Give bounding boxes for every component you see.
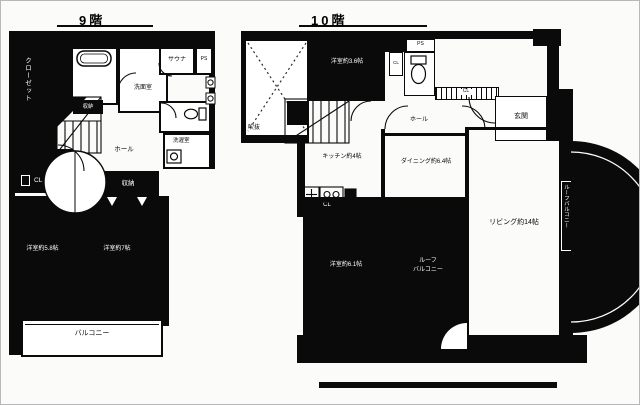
f9-balcony-label: バルコニー bbox=[21, 330, 163, 338]
f10-roof-balcony-side-label: ルーフバルコニー bbox=[563, 184, 569, 248]
floor10-title: 10階 bbox=[299, 10, 427, 27]
f10-ps-label: PS bbox=[406, 42, 435, 48]
f9-toilet-room bbox=[159, 101, 211, 133]
f9-cl-label: CL bbox=[34, 177, 42, 184]
f10-bedroom-bottom bbox=[303, 215, 389, 351]
f10-closet-strip-label: CL bbox=[457, 89, 475, 95]
floorplan-image: 9階 クローゼット 洗面室 サウナ PS 洗濯室 収納 ホール CL 収納 洋室… bbox=[0, 0, 640, 405]
f10-bedroom-bottom-label: 洋室約6.1帖 bbox=[303, 262, 389, 269]
f9-mid-wall bbox=[41, 149, 73, 171]
f10-cl-top-label: CL bbox=[389, 60, 403, 65]
f10-entrance-east-wall bbox=[547, 39, 559, 141]
f9-cl-icon bbox=[21, 175, 30, 186]
f10-south-wall bbox=[297, 335, 587, 363]
f10-entrance-label: 玄関 bbox=[495, 113, 547, 121]
f10-curved-balcony bbox=[571, 141, 640, 333]
f10-living-north-wall bbox=[465, 127, 561, 130]
f10-void bbox=[244, 39, 309, 137]
f9-bedroom-right-label: 洋室約7帖 bbox=[72, 246, 162, 253]
f10-kitchen-label: キッチン約4帖 bbox=[303, 154, 381, 161]
f10-roof-balcony-label2: バルコニー bbox=[389, 267, 467, 274]
f10-living-label: リビング約14帖 bbox=[467, 219, 561, 227]
f10-door-arcs bbox=[351, 97, 495, 129]
f9-ps-label: PS bbox=[195, 57, 213, 63]
f9-sauna-label: サウナ bbox=[159, 57, 195, 64]
f9-bedroom-left bbox=[13, 196, 72, 321]
f9-storage-label: 収納 bbox=[97, 180, 159, 187]
f10-ps-wall bbox=[385, 39, 407, 52]
f10-roof-balcony-bottom bbox=[389, 215, 467, 351]
f10-cl-bottom-label: CL bbox=[309, 202, 345, 209]
f9-bedroom-left-label: 洋室約5.8帖 bbox=[13, 246, 72, 253]
f9-stairs-storage-label: 収納 bbox=[73, 104, 103, 110]
f9-bathroom bbox=[71, 47, 118, 105]
f10-dining-north-wall bbox=[385, 133, 467, 136]
f10-hall-label: ホール bbox=[399, 117, 439, 124]
f9-laundry-label: 洗濯室 bbox=[173, 138, 190, 144]
f10-kitchen-dining-wall bbox=[381, 129, 385, 205]
f9-balcony-rail bbox=[25, 324, 159, 325]
f9-washroom-label: 洗面室 bbox=[118, 85, 168, 92]
f10-bedroom-top bbox=[309, 39, 385, 101]
f10-toilet-room bbox=[404, 52, 435, 96]
f10-roof-balcony-label1: ルーフ bbox=[389, 258, 467, 265]
f9-closet-label: クローゼット bbox=[23, 57, 30, 139]
f10-bedroom-top-label: 洋室約3.6帖 bbox=[309, 59, 385, 66]
f9-bedroom-right bbox=[72, 196, 162, 321]
f10-top-wall bbox=[241, 31, 561, 39]
f10-dining-label: ダイニング約6.4帖 bbox=[385, 159, 467, 166]
f9-bedroom-east-wall bbox=[162, 196, 169, 326]
f10-void-label: 吹抜 bbox=[248, 125, 260, 132]
floor9-title: 9階 bbox=[57, 10, 153, 27]
f9-hall-label: ホール bbox=[97, 146, 151, 153]
f10-south-edge-bar bbox=[319, 382, 557, 388]
